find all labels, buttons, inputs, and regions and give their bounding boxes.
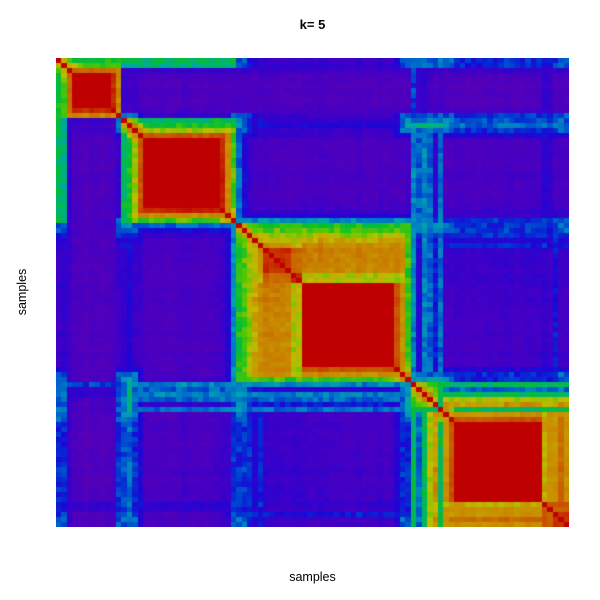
consensus-plot-figure: k= 5 samples samples: [0, 0, 600, 600]
consensus-matrix-heatmap: [56, 58, 569, 527]
x-axis-label: samples: [56, 570, 569, 584]
plot-title: k= 5: [56, 17, 569, 32]
y-axis-label: samples: [15, 269, 29, 316]
